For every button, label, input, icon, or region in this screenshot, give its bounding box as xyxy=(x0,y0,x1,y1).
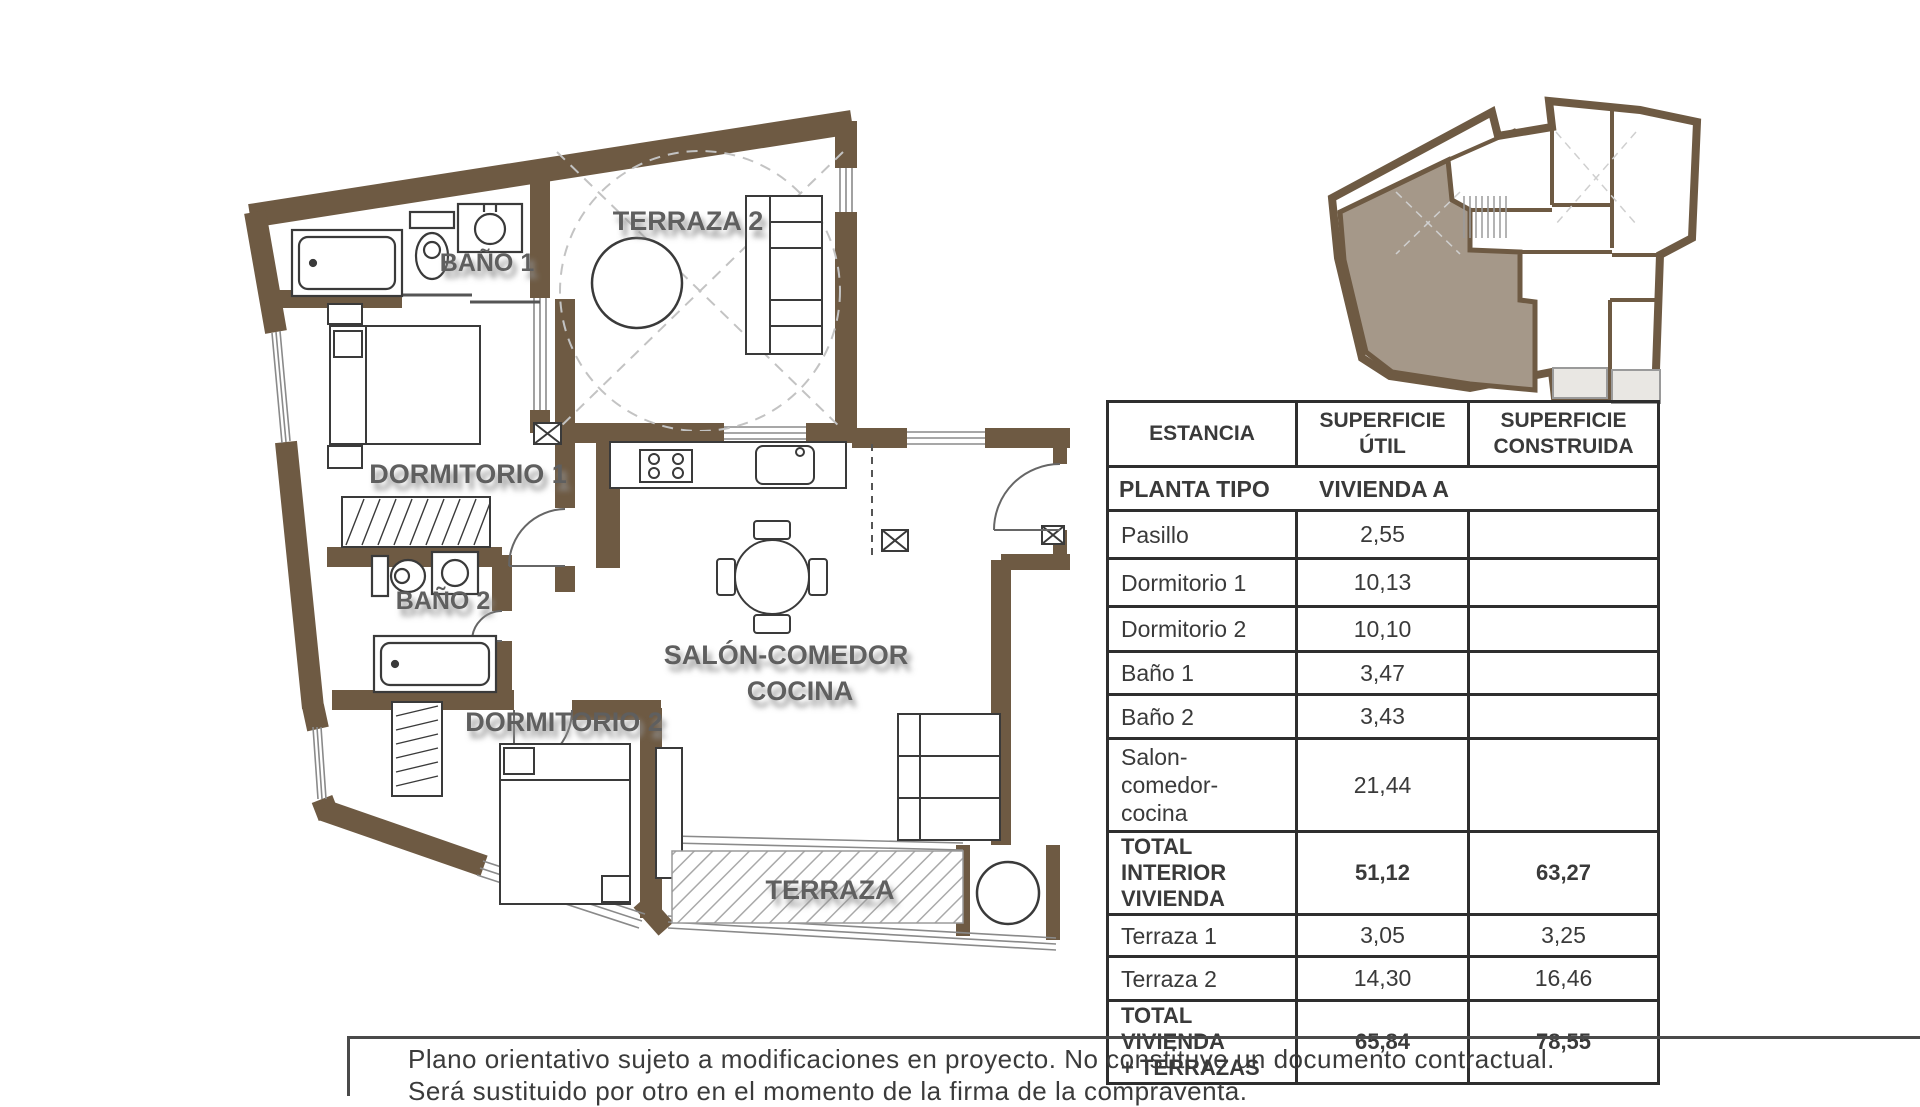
cell-room-name: Pasillo xyxy=(1108,511,1297,559)
key-plan-terrace xyxy=(1553,368,1607,398)
key-plan-terrace xyxy=(1612,370,1660,403)
toilet2-tank xyxy=(372,556,388,596)
table-row: Baño 23,43 xyxy=(1108,695,1659,739)
table-row: Dormitorio 210,10 xyxy=(1108,607,1659,652)
chair xyxy=(809,559,827,595)
cell-surface-value: 21,44 xyxy=(1297,739,1469,832)
kitchen-sink xyxy=(756,446,814,484)
label-bano1: BAÑO 1 xyxy=(440,247,535,277)
table-row: Dormitorio 110,13 xyxy=(1108,559,1659,607)
col-header-estancia: ESTANCIA xyxy=(1108,402,1297,467)
cell-surface-value: 2,55 xyxy=(1297,511,1469,559)
cell-surface-value xyxy=(1469,652,1659,695)
subheader-row: PLANTA TIPO VIVIENDA A xyxy=(1108,467,1659,511)
table-row: Terraza 13,053,25 xyxy=(1108,915,1659,957)
table-row: Baño 13,47 xyxy=(1108,652,1659,695)
label-bano2: BAÑO 2 xyxy=(396,585,490,615)
label-salon-line1: SALÓN-COMEDOR xyxy=(664,639,909,670)
floorplan-sheet: { "colors": { "wall_brown": "#6e5a43", "… xyxy=(0,0,1920,1080)
cell-surface-value xyxy=(1469,739,1659,832)
sink2 xyxy=(442,560,468,586)
table-row: Pasillo2,55 xyxy=(1108,511,1659,559)
cell-surface-value: 10,13 xyxy=(1297,559,1469,607)
cell-room-name: Baño 2 xyxy=(1108,695,1297,739)
cell-surface-value xyxy=(1469,559,1659,607)
bedroom1-furniture xyxy=(328,304,490,547)
cell-surface-value xyxy=(1469,695,1659,739)
bathroom2-fixtures xyxy=(372,552,496,692)
cell-room-name: Baño 1 xyxy=(1108,652,1297,695)
cell-room-name: Dormitorio 1 xyxy=(1108,559,1297,607)
cell-surface-value: 63,27 xyxy=(1469,832,1659,915)
cell-surface-value xyxy=(1469,607,1659,652)
cell-surface-value: 10,10 xyxy=(1297,607,1469,652)
dining-table xyxy=(735,540,809,614)
cell-surface-value: 3,43 xyxy=(1297,695,1469,739)
label-dormitorio2: DORMITORIO 2 xyxy=(465,707,663,737)
vivienda-a-label: VIVIENDA A xyxy=(1298,476,1470,503)
terraza2-area xyxy=(557,151,843,431)
cell-room-name: Terraza 1 xyxy=(1108,915,1297,957)
cell-surface-value: 14,30 xyxy=(1297,957,1469,1001)
col-header-superficie-util: SUPERFICIE ÚTIL xyxy=(1297,402,1469,467)
disclaimer-box: Plano orientativo sujeto a modificacione… xyxy=(347,1036,1920,1096)
cell-room-name: Salon- comedor- cocina xyxy=(1108,739,1297,832)
cell-surface-value: 16,46 xyxy=(1469,957,1659,1001)
chair xyxy=(754,615,790,633)
cell-room-name: Terraza 2 xyxy=(1108,957,1297,1001)
label-terraza2: TERRAZA 2 xyxy=(613,206,764,236)
chair xyxy=(717,559,735,595)
key-plan xyxy=(1332,101,1697,403)
planta-tipo-label: PLANTA TIPO xyxy=(1119,476,1270,503)
hob xyxy=(640,450,692,482)
cell-surface-value: 3,05 xyxy=(1297,915,1469,957)
cell-surface-value: 51,12 xyxy=(1297,832,1469,915)
terraza2-table xyxy=(592,238,682,328)
cell-surface-value: 3,47 xyxy=(1297,652,1469,695)
cell-surface-value xyxy=(1469,511,1659,559)
sofa xyxy=(898,714,1000,840)
label-terraza: TERRAZA xyxy=(766,875,895,905)
label-salon-line2: COCINA xyxy=(747,676,854,706)
terraza-table xyxy=(977,862,1039,924)
surface-table: ESTANCIA SUPERFICIE ÚTIL SUPERFICIE CONS… xyxy=(1106,400,1660,1085)
sink1 xyxy=(475,214,505,244)
table-row: Salon- comedor- cocina21,44 xyxy=(1108,739,1659,832)
table-row: Terraza 214,3016,46 xyxy=(1108,957,1659,1001)
table-row: TOTAL INTERIOR VIVIENDA51,1263,27 xyxy=(1108,832,1659,915)
cell-surface-value: 3,25 xyxy=(1469,915,1659,957)
col-header-superficie-construida: SUPERFICIE CONSTRUIDA xyxy=(1469,402,1659,467)
disclaimer-line1: Plano orientativo sujeto a modificacione… xyxy=(408,1043,1920,1075)
chair xyxy=(754,521,790,539)
cell-room-name: Dormitorio 2 xyxy=(1108,607,1297,652)
label-dormitorio1: DORMITORIO 1 xyxy=(369,459,567,489)
cell-room-name: TOTAL INTERIOR VIVIENDA xyxy=(1108,832,1297,915)
toilet1-tank xyxy=(410,212,454,228)
